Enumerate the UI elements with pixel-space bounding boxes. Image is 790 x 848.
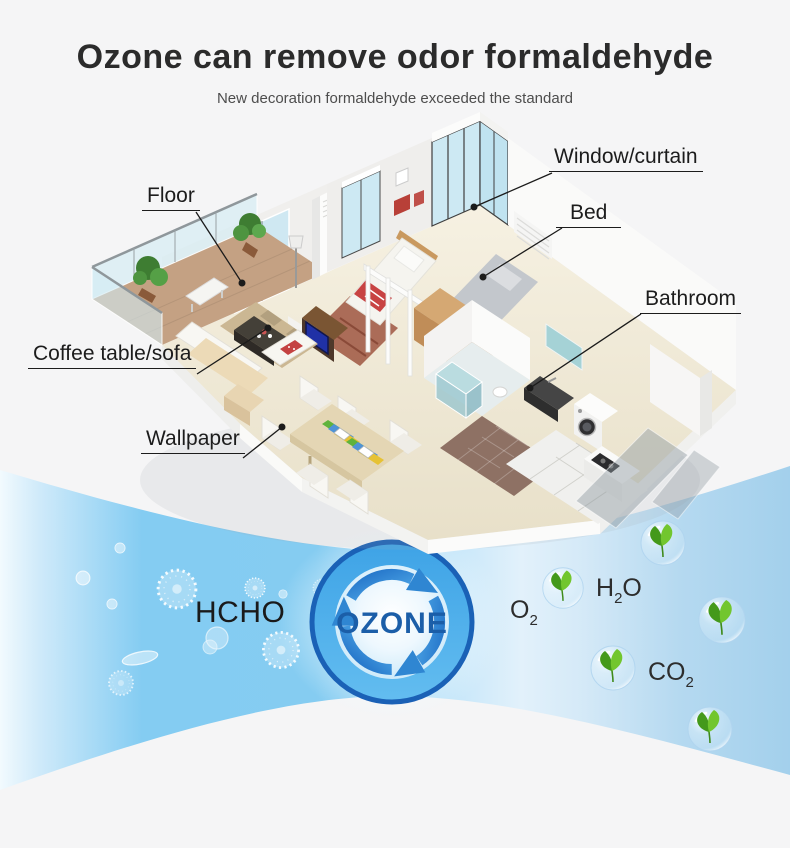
callout-dot-wallpaper xyxy=(279,424,286,431)
subtitle: New decoration formaldehyde exceeded the… xyxy=(0,90,790,107)
toilet-icon xyxy=(493,387,507,397)
ozone-label: OZONE xyxy=(336,607,448,640)
page-title: Ozone can remove odor formaldehyde xyxy=(0,38,790,77)
poster: OZONE xyxy=(0,0,790,848)
callout-dot-bed xyxy=(480,274,487,281)
label-coffee-table-sofa: Coffee table/sofa xyxy=(28,342,196,369)
leaf-bubble-icon xyxy=(591,646,635,690)
label-floor: Floor xyxy=(142,184,200,211)
label-bed: Bed xyxy=(556,201,621,228)
hcho-label: HCHO xyxy=(195,596,285,630)
molecule-co2: CO2 xyxy=(648,658,694,691)
leaf-bubble-icon xyxy=(699,597,745,643)
label-wallpaper: Wallpaper xyxy=(141,427,245,454)
callout-dot-floor xyxy=(239,280,246,287)
label-bathroom: Bathroom xyxy=(640,287,741,314)
callout-dot-window xyxy=(471,204,478,211)
leaf-bubble-icon xyxy=(688,707,732,751)
callout-dot-bathroom xyxy=(527,385,534,392)
molecule-h2o: H2O xyxy=(596,574,642,607)
molecule-o2: O2 xyxy=(510,596,538,629)
callout-dot-coffee xyxy=(265,325,272,332)
illustration-canvas: OZONE xyxy=(0,0,790,848)
leaf-bubble-icon xyxy=(641,521,685,565)
ozone-cycle-badge: OZONE xyxy=(312,542,472,702)
apartment-illustration xyxy=(92,112,736,554)
bay-window xyxy=(432,112,508,226)
leaf-bubble-icon xyxy=(543,568,583,608)
label-window-curtain: Window/curtain xyxy=(549,145,703,172)
